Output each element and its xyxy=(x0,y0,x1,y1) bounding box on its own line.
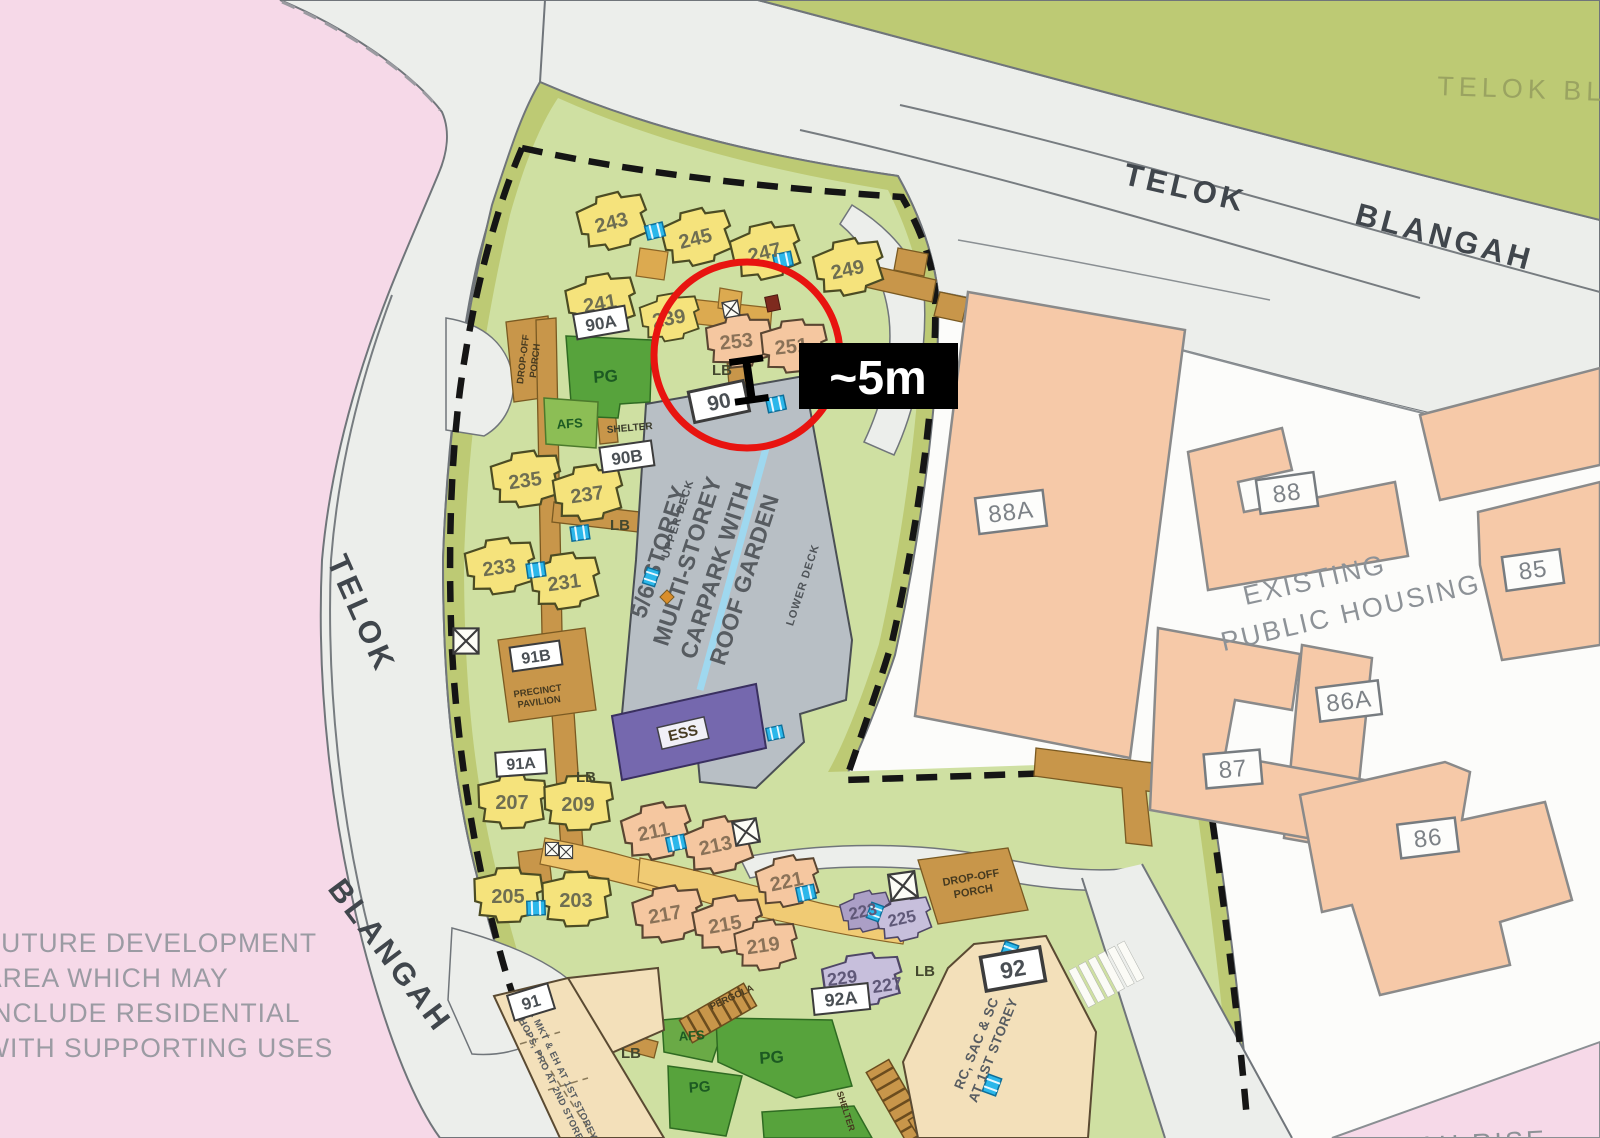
distance-annotation-text: ~5m xyxy=(829,352,926,405)
site-plan-map: ESS 5/6 STOREY MULTI-STOREY CARPARK WITH… xyxy=(0,0,1600,1138)
label-209: 209 xyxy=(561,794,594,816)
pg-label-left: PG xyxy=(688,1078,711,1096)
lb-92: LB xyxy=(915,963,935,980)
label-219: 219 xyxy=(745,933,781,959)
road-corner-text: TELOK BL xyxy=(1437,71,1600,107)
xbox-junction-b xyxy=(559,845,572,858)
label-227: 227 xyxy=(871,973,904,997)
label-205: 205 xyxy=(491,886,524,908)
lift-carpark-east xyxy=(766,725,784,741)
distance-annotation: ~5m xyxy=(799,343,958,409)
lb-253: LB xyxy=(712,362,732,379)
link-243-241 xyxy=(636,248,668,280)
svg-text:90: 90 xyxy=(705,389,733,416)
lb-237: LB xyxy=(610,517,630,534)
lift-233-231 xyxy=(526,562,546,578)
svg-text:86A: 86A xyxy=(1325,685,1374,717)
svg-text:85: 85 xyxy=(1517,555,1549,586)
label-237: 237 xyxy=(569,482,605,508)
svg-text:92: 92 xyxy=(998,954,1028,984)
site-plan-svg: ESS 5/6 STOREY MULTI-STOREY CARPARK WITH… xyxy=(0,0,1600,1138)
svg-text:INCLUDE RESIDENTIAL: INCLUDE RESIDENTIAL xyxy=(0,998,300,1028)
svg-text:87: 87 xyxy=(1218,755,1249,784)
svg-text:FUTURE DEVELOPMENT: FUTURE DEVELOPMENT xyxy=(0,928,317,958)
label-235: 235 xyxy=(507,468,543,494)
svg-text:92A: 92A xyxy=(824,987,859,1010)
label-86: 86 xyxy=(1397,818,1459,859)
label-86A: 86A xyxy=(1316,680,1382,721)
lift-235-237 xyxy=(570,525,590,541)
svg-text:86: 86 xyxy=(1412,823,1444,853)
xbox-west xyxy=(453,628,478,653)
xbox-213 xyxy=(732,818,760,846)
lift-carpark-north xyxy=(766,395,787,412)
label-92A: 92A xyxy=(812,983,870,1015)
label-203: 203 xyxy=(559,890,592,912)
label-87: 87 xyxy=(1204,750,1263,789)
svg-text:88: 88 xyxy=(1271,478,1303,509)
lb-91: LB xyxy=(621,1045,641,1062)
pg-label-top: PG xyxy=(593,366,619,387)
afs-label-bottom: AFS xyxy=(678,1027,705,1044)
label-253: 253 xyxy=(719,329,754,354)
svg-text:AREA WHICH MAY: AREA WHICH MAY xyxy=(0,963,229,993)
maroon-structure xyxy=(765,295,781,312)
svg-text:91A: 91A xyxy=(506,755,537,774)
path-exit-east-beyond xyxy=(934,292,968,322)
svg-text:88A: 88A xyxy=(987,496,1036,528)
label-233: 233 xyxy=(481,555,517,581)
lb-91a: LB xyxy=(576,769,596,786)
xbox-porch-se xyxy=(888,871,918,901)
label-88: 88 xyxy=(1256,472,1318,514)
xbox-junction-a xyxy=(545,842,558,855)
label-85: 85 xyxy=(1502,549,1564,591)
label-207: 207 xyxy=(495,792,528,814)
label-91A: 91A xyxy=(495,749,547,776)
label-231: 231 xyxy=(546,570,582,596)
pg-label-mid: PG xyxy=(759,1047,785,1068)
svg-text:WITH SUPPORTING USES: WITH SUPPORTING USES xyxy=(0,1033,333,1063)
label-88A: 88A xyxy=(975,490,1047,534)
lift-205-203 xyxy=(527,901,545,916)
afs-label-top: AFS xyxy=(556,415,583,432)
xbox-253 xyxy=(722,300,740,318)
